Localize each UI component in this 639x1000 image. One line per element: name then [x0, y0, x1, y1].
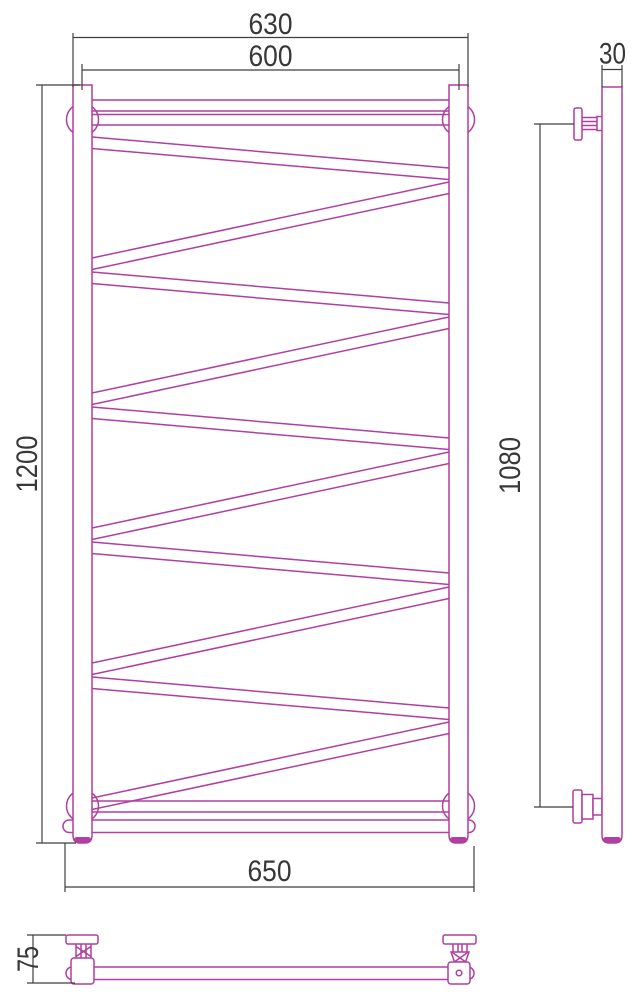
bottom-left-bracket	[66, 935, 98, 984]
bottom-right-stem	[453, 944, 467, 952]
side-top-bracket-stem	[582, 118, 597, 130]
dim-30-label: 30	[599, 38, 626, 71]
dim-650: 650	[65, 843, 474, 892]
crossbar-4	[92, 317, 449, 405]
crossbar-2	[92, 182, 449, 270]
side-bottom-bracket-flange	[573, 790, 582, 823]
dimensions: 630 600 1200 650 30 1080 75	[11, 8, 626, 983]
crossbar-6	[92, 452, 449, 540]
side-tube	[602, 87, 622, 843]
right-rail-cap	[450, 837, 467, 843]
crossbar-1	[92, 137, 449, 180]
technical-drawing: 630 600 1200 650 30 1080 75	[0, 0, 639, 1000]
dim-30: 30	[599, 38, 626, 88]
dim-75-label: 75	[12, 946, 45, 972]
dim-1080: 1080	[494, 124, 574, 807]
crossbar-3	[92, 272, 449, 315]
dim-1080-lines	[534, 124, 574, 807]
crossbar-7	[92, 542, 449, 585]
crossbar-8	[92, 587, 449, 675]
bottom-left-block	[71, 958, 94, 984]
crossbar-10	[92, 722, 449, 810]
crossbar-9	[92, 677, 449, 720]
bottom-right-block	[448, 962, 470, 984]
left-rail-cap	[74, 837, 91, 843]
bottom-bar-650	[63, 820, 475, 833]
dim-630-label: 630	[249, 8, 293, 41]
dim-600-label: 600	[249, 40, 293, 73]
dim-600: 600	[82, 40, 459, 90]
bottom-view-tube	[66, 967, 474, 980]
side-top-bracket-flange	[574, 108, 582, 140]
side-bottom-bracket-body	[582, 795, 593, 820]
dim-650-label: 650	[248, 855, 292, 888]
dim-1080-label: 1080	[494, 437, 527, 494]
bottom-right-flange	[443, 935, 476, 944]
side-view	[573, 87, 622, 843]
side-bottom-bracket	[573, 790, 602, 823]
dim-1200-label: 1200	[11, 436, 44, 493]
bottom-right-bracket	[443, 935, 476, 984]
drawing-sheet: 630 600 1200 650 30 1080 75	[0, 0, 639, 1000]
front-view	[63, 85, 475, 843]
bottom-crossbar	[92, 801, 449, 812]
side-tube-cap	[603, 837, 621, 843]
zigzag-crossbars	[92, 137, 449, 810]
side-bottom-bracket-nut	[593, 799, 602, 816]
left-rail	[73, 85, 92, 843]
bottom-left-flange	[66, 935, 98, 944]
right-rail	[449, 85, 468, 843]
hanger-crossbar	[92, 115, 449, 126]
bottom-view	[66, 935, 476, 984]
dim-1200: 1200	[11, 85, 80, 843]
side-top-bracket	[574, 108, 604, 140]
top-crossbar	[92, 100, 449, 111]
bottom-left-stem	[76, 944, 91, 958]
crossbar-5	[92, 407, 449, 450]
